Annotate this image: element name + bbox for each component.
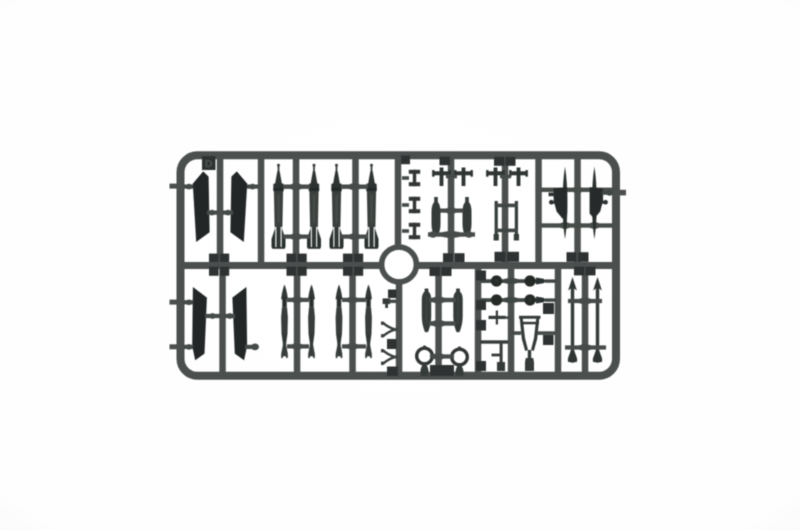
svg-text:D: D: [205, 158, 213, 170]
